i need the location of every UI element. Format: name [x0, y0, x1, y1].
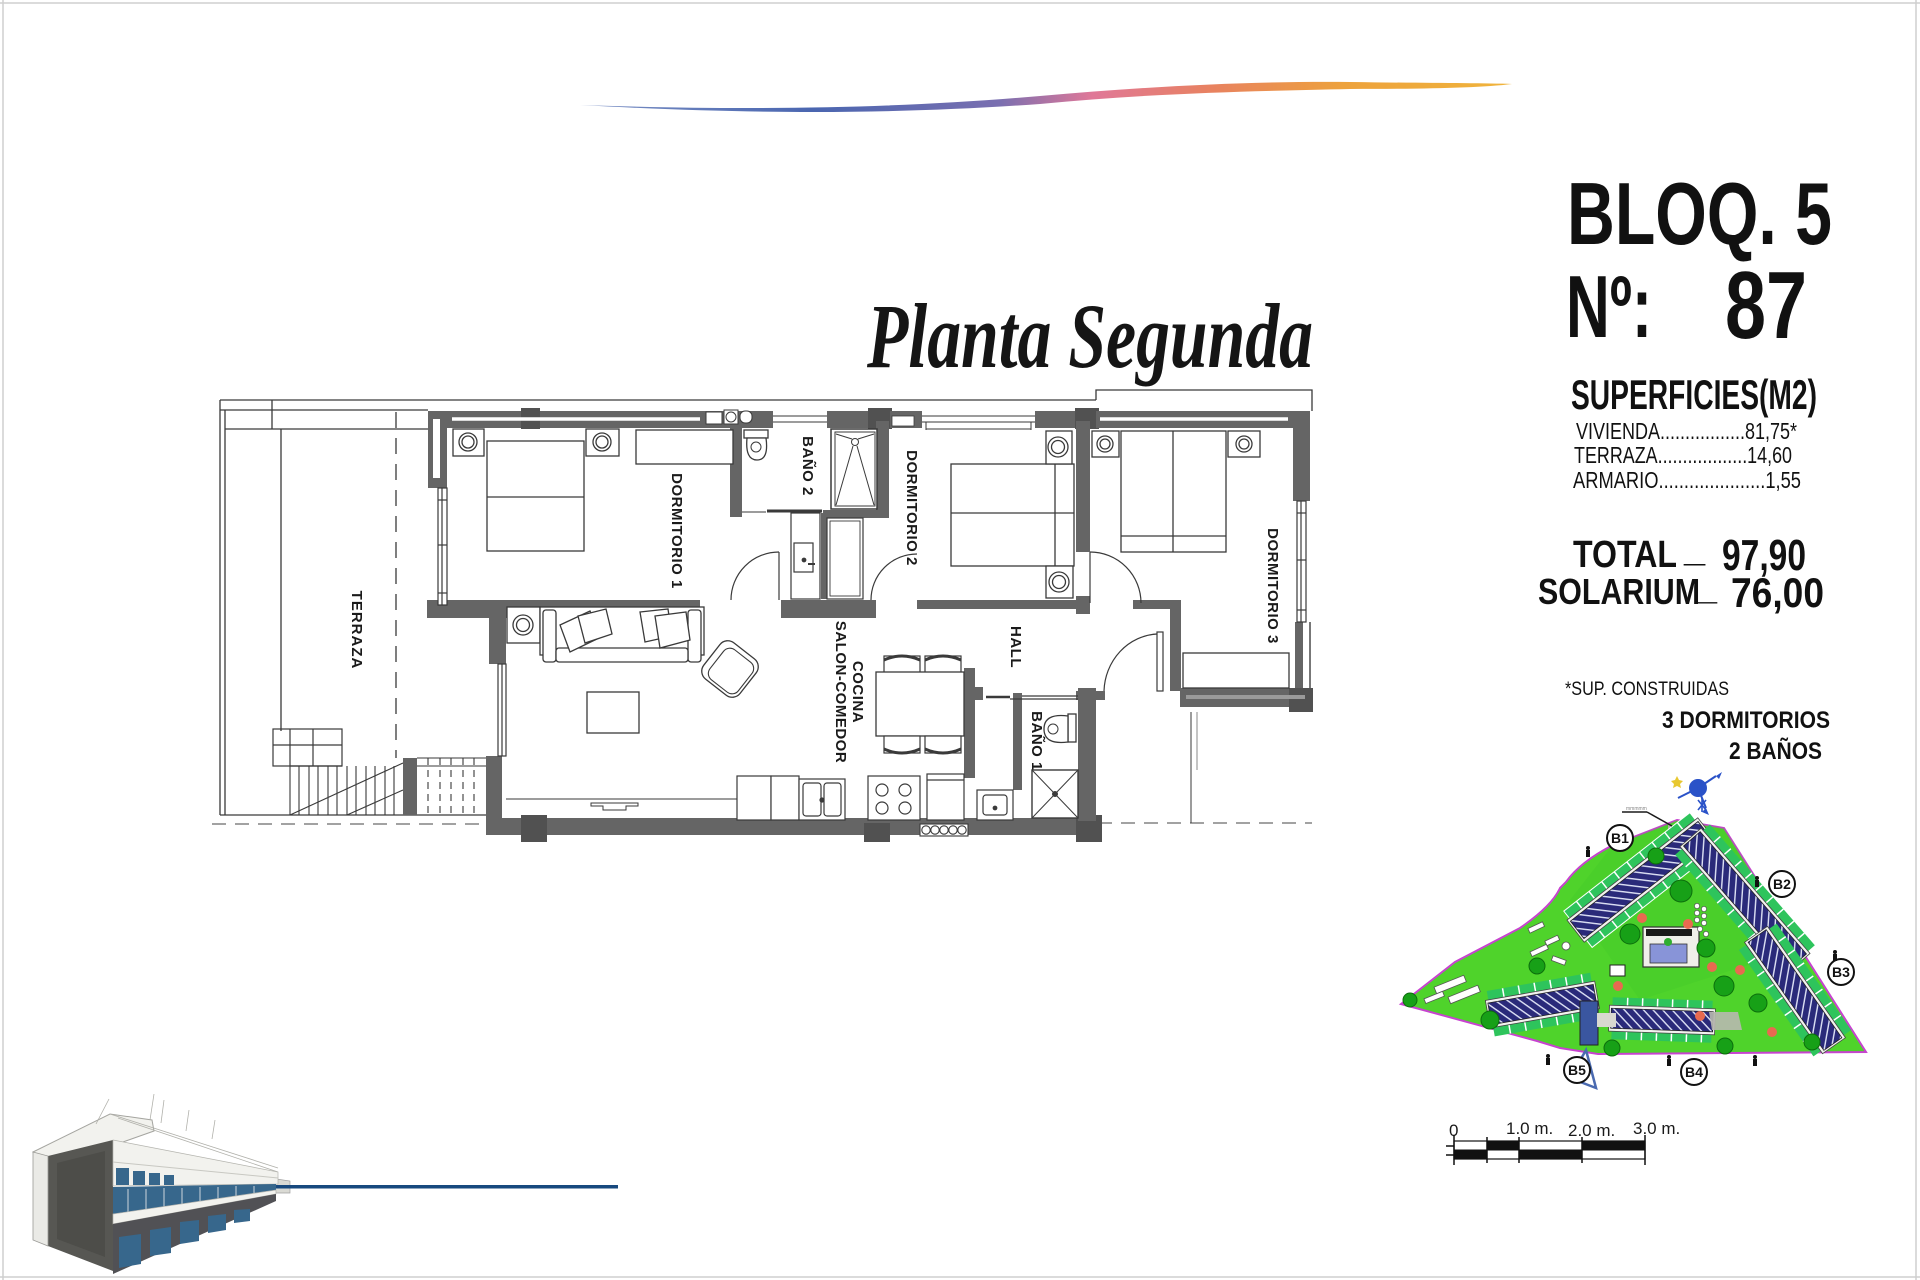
svg-text:3 DORMITORIOS: 3 DORMITORIOS [1662, 707, 1830, 734]
svg-text:Nº:: Nº: [1566, 257, 1652, 356]
svg-text:_: _ [1696, 566, 1718, 607]
svg-text:_: _ [1683, 528, 1706, 570]
svg-text:HALL: HALL [1007, 626, 1024, 668]
svg-text:B1: B1 [1611, 830, 1629, 846]
svg-text:COCINA: COCINA [849, 661, 866, 723]
svg-text:B5: B5 [1568, 1062, 1586, 1078]
svg-text:DORMITORIO 2: DORMITORIO 2 [903, 450, 920, 566]
svg-text:Planta Segunda: Planta Segunda [866, 285, 1313, 387]
svg-text:TOTAL: TOTAL [1573, 534, 1677, 576]
svg-text:DORMITORIO 3: DORMITORIO 3 [1264, 528, 1281, 644]
svg-text:BAÑO 1: BAÑO 1 [1028, 711, 1046, 771]
svg-text:B2: B2 [1773, 876, 1791, 892]
svg-text:SOLARIUM: SOLARIUM [1538, 571, 1700, 612]
svg-text:1.0 m.: 1.0 m. [1506, 1119, 1553, 1138]
svg-text:SALON-COMEDOR: SALON-COMEDOR [832, 621, 849, 763]
svg-text:mmmmm: mmmmm [1626, 806, 1647, 812]
svg-text:TERRAZA: TERRAZA [348, 591, 365, 670]
svg-text:B3: B3 [1832, 964, 1850, 980]
svg-text:VIVIENDA.................81,75: VIVIENDA.................81,75* [1576, 418, 1797, 444]
svg-text:B4: B4 [1685, 1064, 1703, 1080]
svg-text:BAÑO 2: BAÑO 2 [799, 436, 817, 496]
svg-text:87: 87 [1725, 252, 1807, 359]
svg-text:BLOQ. 5: BLOQ. 5 [1567, 164, 1832, 263]
svg-text:76,00: 76,00 [1731, 569, 1824, 616]
svg-text:ARMARIO.....................1,: ARMARIO.....................1,55 [1573, 467, 1801, 493]
svg-text:3.0 m.: 3.0 m. [1633, 1119, 1680, 1138]
svg-text:*SUP. CONSTRUIDAS: *SUP. CONSTRUIDAS [1565, 679, 1729, 700]
svg-text:DORMITORIO 1: DORMITORIO 1 [668, 473, 685, 589]
svg-text:2.0 m.: 2.0 m. [1568, 1121, 1615, 1140]
svg-text:TERRAZA..................14,60: TERRAZA..................14,60 [1574, 442, 1792, 468]
svg-text:2 BAÑOS: 2 BAÑOS [1729, 737, 1822, 765]
svg-text:SUPERFICIES(M2): SUPERFICIES(M2) [1571, 371, 1817, 418]
